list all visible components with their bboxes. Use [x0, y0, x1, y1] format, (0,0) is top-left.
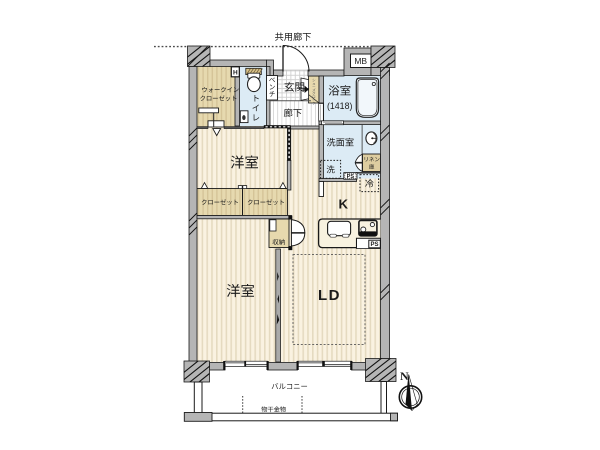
svg-text:PS: PS [370, 242, 378, 248]
svg-text:MB: MB [354, 56, 367, 66]
svg-text:LD: LD [318, 287, 341, 304]
svg-text:H: H [233, 69, 238, 76]
svg-text:(1418): (1418) [327, 101, 352, 111]
svg-text:PS: PS [347, 174, 355, 180]
svg-text:N: N [400, 369, 409, 383]
svg-text:K: K [339, 197, 349, 212]
